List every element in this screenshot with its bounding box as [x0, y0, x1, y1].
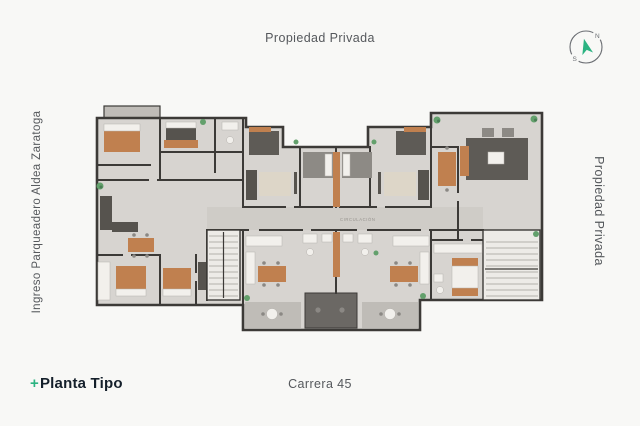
corridor: CIRCULACIÓN	[207, 207, 483, 230]
toilet-icon	[437, 287, 444, 294]
kitchen-counter-icon	[434, 244, 482, 253]
coffee-table-icon	[488, 152, 504, 164]
kitchen-counter-icon	[98, 262, 110, 300]
stairwell-right	[483, 230, 540, 300]
toilet-icon	[307, 249, 314, 256]
center-terrace	[305, 293, 357, 328]
corridor-label: CIRCULACIÓN	[340, 217, 375, 222]
sofa-icon	[460, 146, 469, 176]
den-rug	[396, 131, 426, 155]
den-rug	[249, 131, 279, 155]
toilet-icon	[362, 249, 369, 256]
dining-table-icon	[128, 238, 154, 252]
dining-table-icon	[258, 266, 286, 282]
floor-plan: CIRCULACIÓN	[0, 0, 640, 426]
page: { "labels": { "top": "Propiedad Privada"…	[0, 0, 640, 426]
kitchen-island-icon	[393, 236, 429, 246]
living-rug	[259, 172, 291, 196]
center-wood-wall	[333, 152, 340, 207]
sofa-icon	[418, 170, 429, 200]
dining-table-icon	[438, 152, 456, 186]
living-rug	[384, 172, 416, 196]
kitchen-island-icon	[246, 236, 282, 246]
stairwell-left	[207, 230, 240, 300]
sofa-icon	[100, 196, 112, 230]
dining-table-icon	[390, 266, 418, 282]
sofa-icon	[246, 170, 257, 200]
